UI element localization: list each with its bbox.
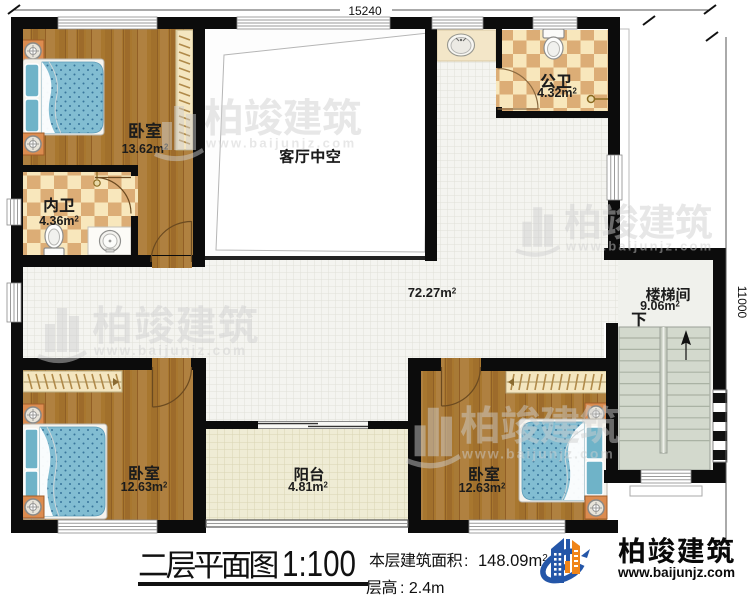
svg-text:www.baijunjz.com: www.baijunjz.com [93,343,247,358]
svg-text:www.baijunjz.com: www.baijunjz.com [565,239,713,254]
svg-text:www.baijunjz.com: www.baijunjz.com [617,564,735,580]
svg-text:9.06m2: 9.06m2 [640,299,680,313]
svg-text:12.63m2: 12.63m2 [459,481,506,495]
svg-text:: 2.4m: : 2.4m [400,580,444,597]
svg-text:72.27m2: 72.27m2 [408,285,457,300]
svg-text:148.09m2: 148.09m2 [478,552,548,570]
svg-text:4.81m2: 4.81m2 [288,480,328,494]
svg-text:13.62m2: 13.62m2 [122,142,169,156]
svg-text:12.63m2: 12.63m2 [121,480,168,494]
svg-text:15240: 15240 [348,4,382,18]
svg-text:www.baijunjz.com: www.baijunjz.com [461,446,615,462]
svg-text:11000: 11000 [735,286,749,319]
svg-text:www.baijunjz.com: www.baijunjz.com [205,136,357,151]
svg-text:1:100: 1:100 [282,543,356,584]
svg-text:4.32m2: 4.32m2 [537,86,577,100]
svg-text::: : [464,553,468,570]
svg-text:4.36m2: 4.36m2 [39,214,79,228]
